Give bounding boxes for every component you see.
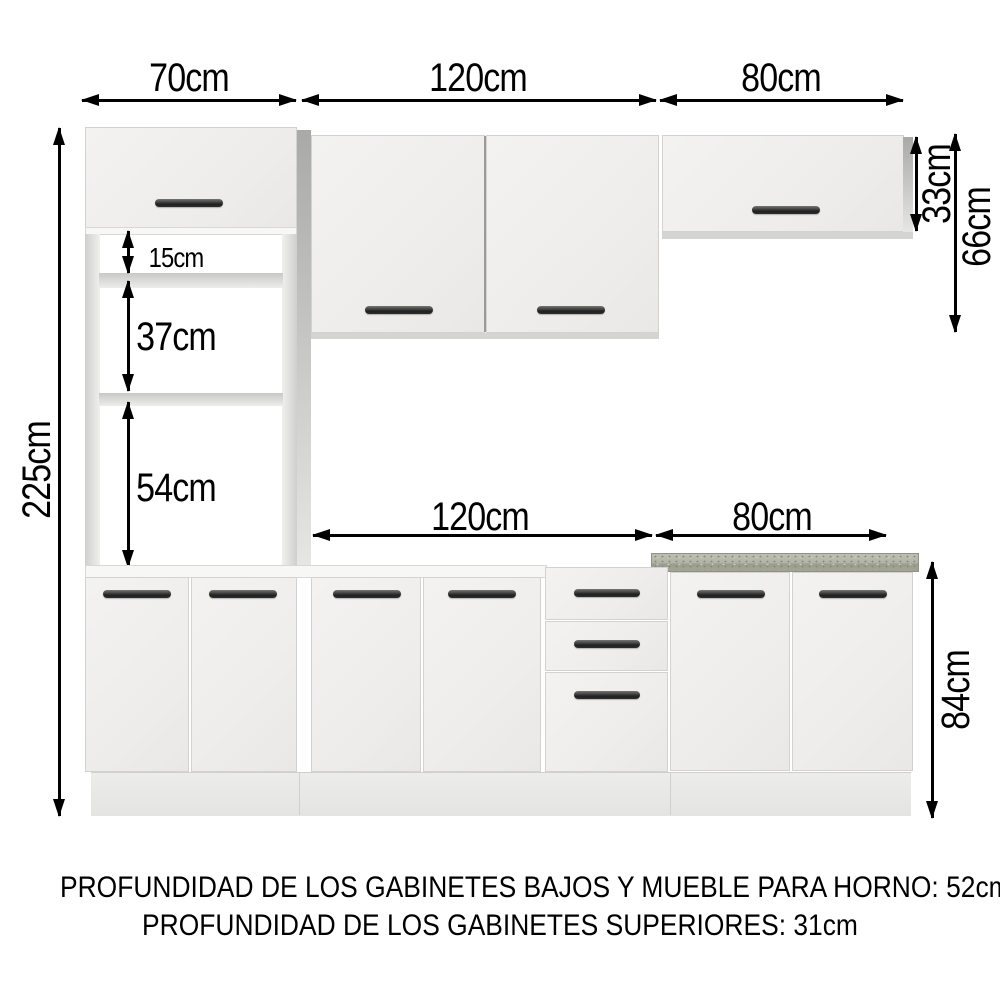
base-door-right-right-handle xyxy=(819,590,887,598)
tower-left-side-panel xyxy=(85,234,100,567)
base-door-mid-left-handle xyxy=(333,590,401,598)
wall-cabinet-120-underside xyxy=(311,333,659,339)
base-door-mid-left xyxy=(311,577,421,772)
dim-label-upper-right-width: 80cm xyxy=(722,58,841,98)
footer-depth-base: PROFUNDIDAD DE LOS GABINETES BAJOS Y MUE… xyxy=(60,871,940,905)
base-door-tower-left xyxy=(85,577,189,772)
wall-cabinet-120-right-handle xyxy=(537,306,605,314)
wall-cabinet-120-right-door xyxy=(486,135,659,333)
tower-upper-door xyxy=(85,127,297,228)
plinth-seam-left xyxy=(299,773,300,815)
wall-cabinet-120-door-seam xyxy=(484,136,486,332)
base-door-tower-right-handle xyxy=(209,590,277,598)
dim-arrow-base-mid-width xyxy=(313,534,652,537)
base-door-tower-left-handle xyxy=(103,590,171,598)
wall-cabinet-80-door xyxy=(662,135,904,232)
dim-label-opening-top: 15cm xyxy=(134,244,219,272)
dim-label-total-height: 225cm xyxy=(17,411,57,530)
base-door-mid-right-handle xyxy=(448,590,516,598)
dim-label-tower-width: 70cm xyxy=(130,58,249,98)
base-door-right-right xyxy=(792,572,913,771)
drawer-middle-handle xyxy=(574,640,640,648)
dim-label-opening-bottom: 54cm xyxy=(125,468,227,508)
base-door-right-left-handle xyxy=(697,590,765,598)
tower-cabinet-bottom-board xyxy=(85,227,297,235)
plinth-seam-right xyxy=(670,773,671,815)
countertop xyxy=(651,553,919,572)
footer-depth-upper: PROFUNDIDAD DE LOS GABINETES SUPERIORES:… xyxy=(60,909,940,943)
product-dimension-diagram: 70cm 120cm 80cm 225cm 15cm 37cm 54cm 33c… xyxy=(0,0,1000,1000)
tower-right-side-panel xyxy=(282,234,297,567)
tower-upper-door-handle xyxy=(155,199,223,207)
drawer-top-handle xyxy=(574,589,640,597)
dim-arrow-opening-top xyxy=(127,231,130,273)
dim-label-upper-height: 66cm xyxy=(957,176,997,278)
dim-label-base-right-width: 80cm xyxy=(713,497,832,537)
dim-label-upper-mid-width: 120cm xyxy=(410,58,546,98)
wall-cabinet-80-handle xyxy=(752,206,820,214)
drawer-bottom-handle xyxy=(574,691,640,699)
dim-label-base-mid-width: 120cm xyxy=(412,497,548,537)
wall-cabinet-120-left-handle xyxy=(365,306,433,314)
dim-arrow-upper-mid-width xyxy=(302,99,656,102)
base-door-tower-right xyxy=(191,577,297,772)
tower-outer-side-panel xyxy=(297,130,311,567)
wall-cabinet-80-underside xyxy=(662,232,913,239)
plinth xyxy=(91,772,911,816)
dim-arrow-upper-right-width xyxy=(660,99,903,102)
dim-arrow-base-right-width xyxy=(656,534,886,537)
dim-arrow-tower-width xyxy=(82,99,296,102)
base-door-right-left xyxy=(670,572,790,771)
dim-label-opening-mid: 37cm xyxy=(125,317,227,357)
base-door-mid-right xyxy=(423,577,541,772)
dim-label-base-height: 84cm xyxy=(936,639,976,741)
drawer-bottom xyxy=(545,672,668,772)
wall-cabinet-120-left-door xyxy=(311,135,485,333)
